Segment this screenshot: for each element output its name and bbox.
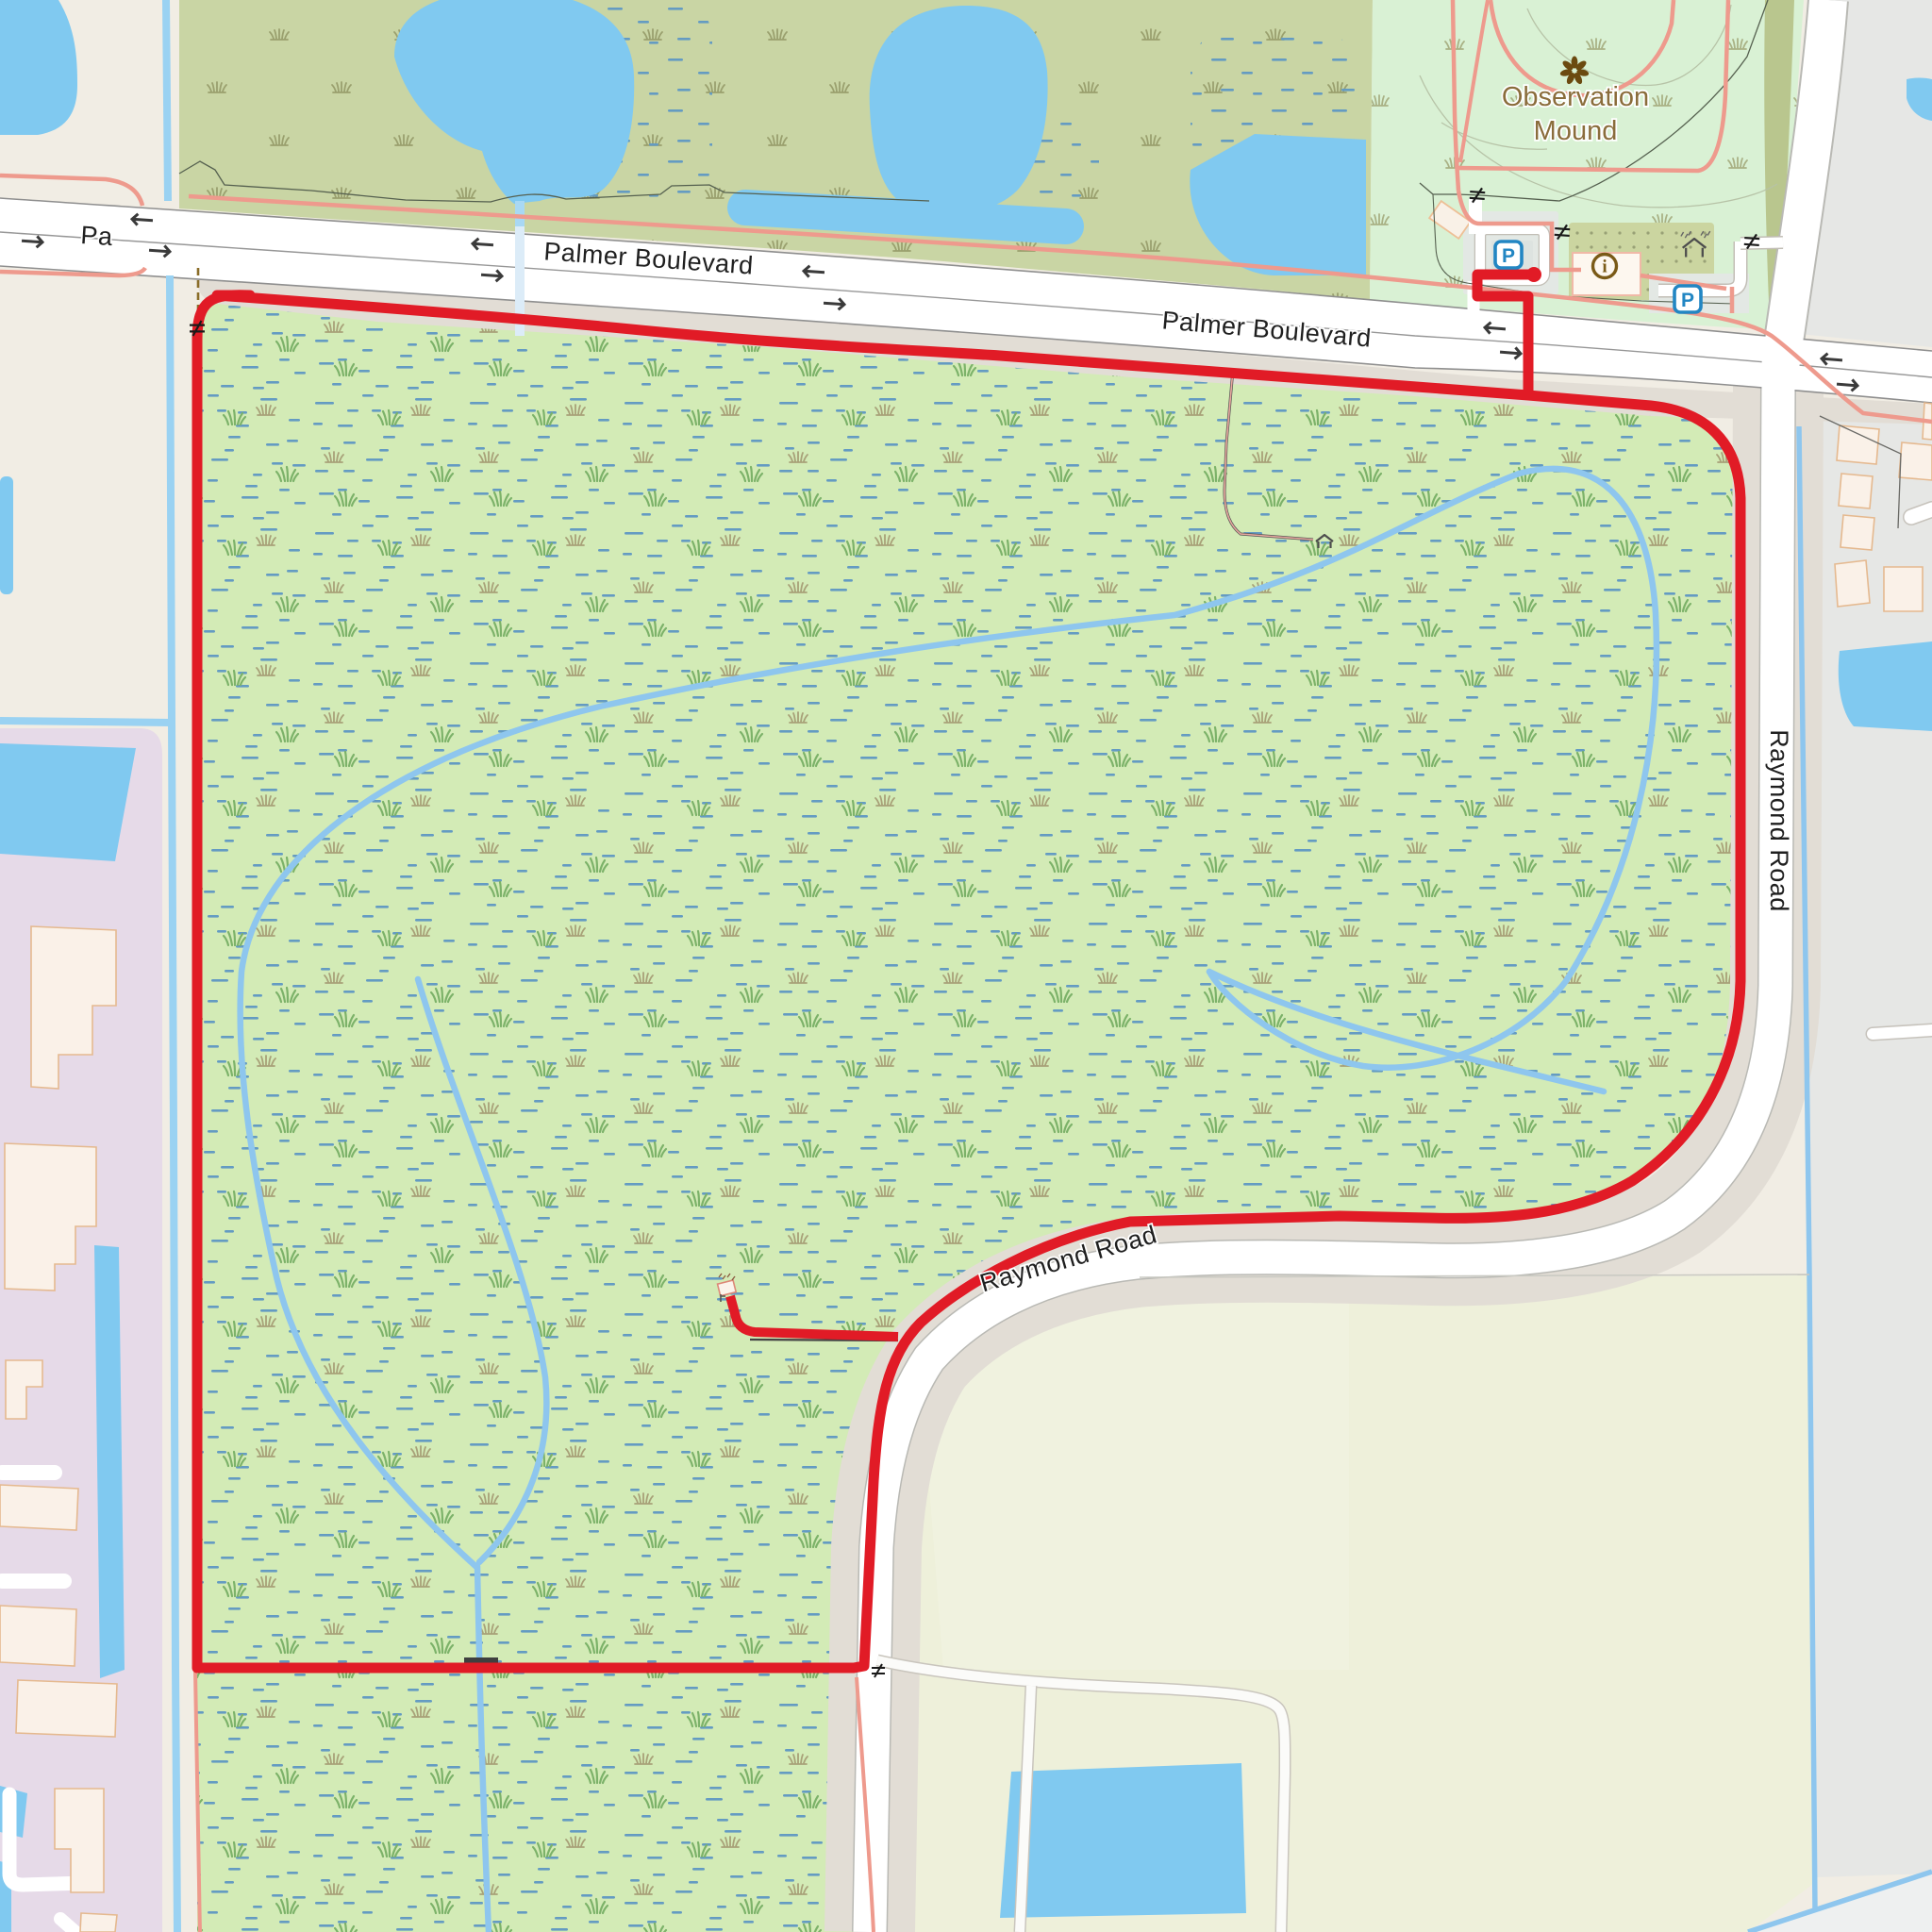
svg-text:P: P (1502, 245, 1515, 267)
svg-text:Mound: Mound (1534, 116, 1618, 146)
svg-text:Observation: Observation (1502, 82, 1649, 112)
svg-text:i: i (1602, 258, 1607, 277)
svg-text:P: P (1681, 290, 1694, 311)
svg-text:Pa: Pa (80, 221, 114, 251)
svg-text:Raymond Road: Raymond Road (1765, 729, 1793, 912)
